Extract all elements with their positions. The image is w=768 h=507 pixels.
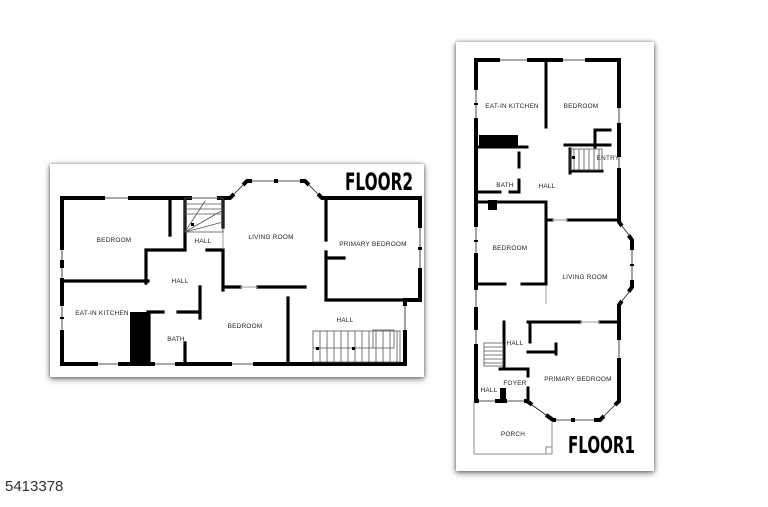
wall-stub (488, 200, 497, 210)
room-label-primary-bedroom: PRIMARY BEDROOM (339, 241, 406, 248)
floor2-title: FLOOR2 (345, 168, 413, 196)
floor2-plan-svg: BEDROOM HALL LIVING ROOM PRIMARY BEDROOM… (50, 164, 424, 377)
floorplan-image: BEDROOM HALL LIVING ROOM PRIMARY BEDROOM… (0, 0, 768, 507)
room-label-hall-lower: HALL (481, 387, 498, 394)
room-label-primary-bedroom: PRIMARY BEDROOM (544, 376, 611, 383)
floor1-plan-sheet: EAT-IN KITCHEN BEDROOM ENTRY BATH HALL B… (456, 42, 654, 471)
room-label-hall-stairs: HALL (337, 317, 354, 324)
door-jamb-stub (500, 388, 506, 401)
floor2-main-staircase (313, 330, 400, 362)
floor2-window-markers (62, 181, 420, 364)
chimney-block (479, 135, 518, 147)
room-label-entry: ENTRY (597, 155, 620, 162)
room-label-hall-center: HALL (507, 340, 524, 347)
room-label-bedroom-mid: BEDROOM (493, 245, 528, 252)
room-label-bedroom-lower: BEDROOM (228, 323, 263, 330)
room-label-living-room: LIVING ROOM (562, 274, 607, 281)
room-label-eat-in-kitchen: EAT-IN KITCHEN (485, 103, 539, 110)
mls-number: 5413378 (5, 478, 63, 495)
room-label-foyer: FOYER (503, 380, 526, 387)
floor1-openings (546, 220, 600, 322)
floor1-plan-svg: EAT-IN KITCHEN BEDROOM ENTRY BATH HALL B… (456, 42, 654, 471)
floor1-interior-walls (477, 60, 619, 401)
floor2-plan-sheet: BEDROOM HALL LIVING ROOM PRIMARY BEDROOM… (50, 164, 424, 377)
floor2-winder-staircase (185, 198, 223, 232)
room-label-hall-upper: HALL (195, 238, 212, 245)
room-label-living-room: LIVING ROOM (248, 234, 293, 241)
room-label-eat-in-kitchen: EAT-IN KITCHEN (75, 310, 129, 317)
floor2-interior-walls (62, 198, 405, 364)
room-label-porch: PORCH (501, 431, 525, 438)
room-label-bedroom-upper: BEDROOM (97, 237, 132, 244)
floor1-title: FLOOR1 (568, 433, 635, 459)
chimney-block (130, 312, 149, 364)
room-label-hall-upper: HALL (539, 183, 556, 190)
room-label-bath: BATH (167, 336, 185, 343)
floor2-exterior-walls (62, 181, 420, 364)
floor1-hall-staircase (484, 343, 503, 366)
room-label-bath: BATH (496, 182, 514, 189)
room-label-bedroom-upper: BEDROOM (564, 103, 599, 110)
room-label-hall-center: HALL (172, 278, 189, 285)
